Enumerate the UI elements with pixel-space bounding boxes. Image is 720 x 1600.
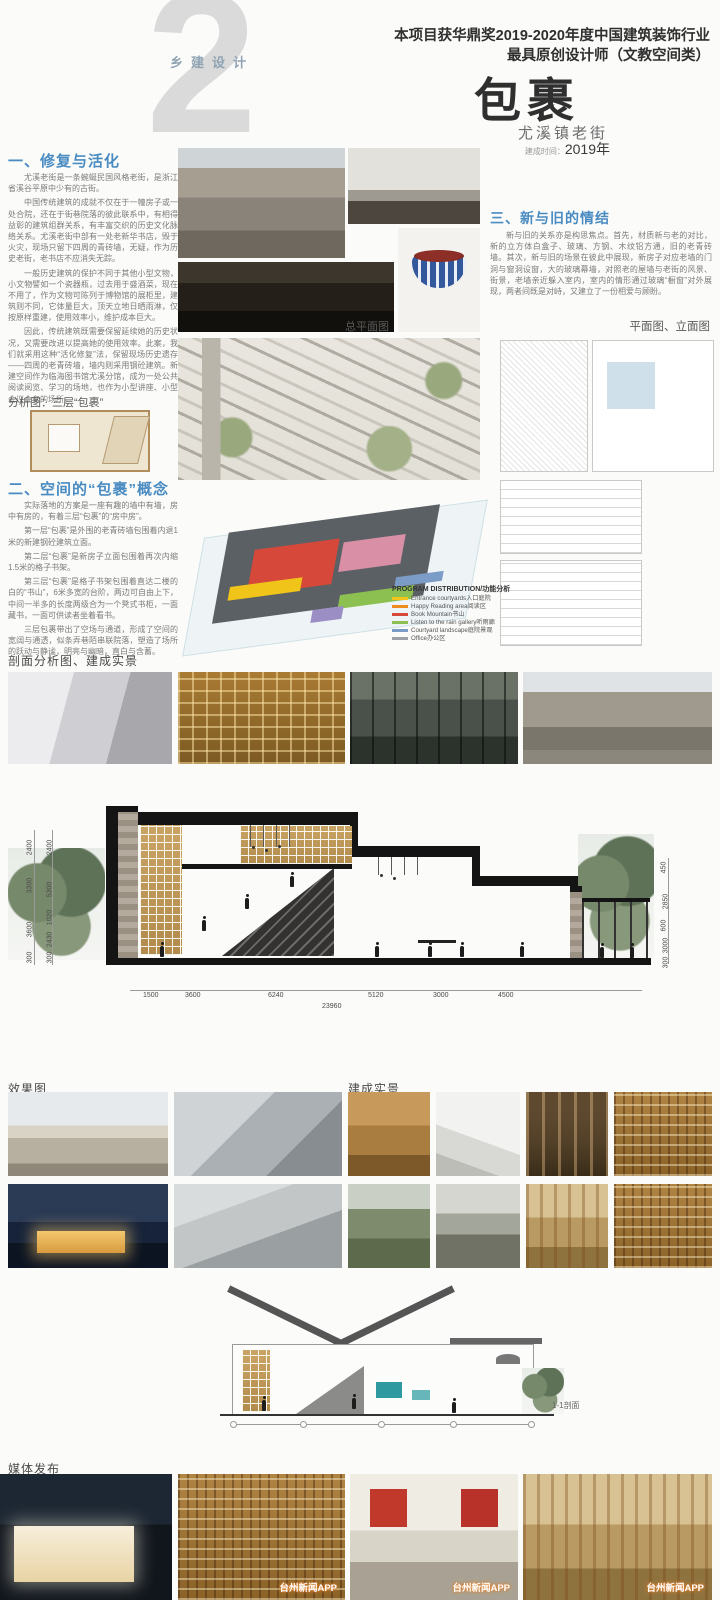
person-silhouette (630, 947, 634, 958)
photo-media-night-exterior: 台州新闻APP (0, 1474, 172, 1600)
photo-media-bookshelf: 台州新闻APP (178, 1474, 345, 1600)
dimension-label: 2850 (662, 894, 669, 910)
photo-white-corridor (8, 672, 172, 764)
diagram-courtyard (48, 424, 80, 452)
legend-label: Office办公区 (411, 634, 445, 643)
built-time-label: 建成时间： (525, 147, 565, 156)
legend-swatch (392, 629, 408, 632)
dimension-label: 300 (662, 957, 669, 969)
photo-built-courtyard (348, 1184, 430, 1268)
diagram-wedge (102, 416, 150, 464)
paragraph: 一般历史建筑的保护不同于其他小型文物，小文物譬如一个瓷器瓶，过去用于盛酒菜，现在… (8, 268, 178, 324)
porcelain-bowl (412, 254, 466, 288)
dimension-label: 2430 (46, 932, 53, 948)
section-roof-low (472, 876, 580, 886)
series-label: 乡建设计 (170, 52, 254, 71)
paragraph: 尤溪老街是一条蜿蜒民国风格老街，是浙江省溪谷平原中少有的古街。 (8, 172, 178, 194)
person-silhouette (428, 946, 432, 957)
dimension-label: 3600 (26, 922, 33, 938)
dimension-label: 300 (46, 952, 53, 964)
section-right-wall (570, 886, 582, 964)
photo-render-massing (174, 1092, 342, 1176)
photo-trees-left (8, 848, 105, 960)
photo-media-library: 台州新闻APP (523, 1474, 712, 1600)
teal-volume-1 (376, 1382, 402, 1398)
elevation-drawing-2 (500, 560, 642, 646)
section-mezzanine-slab (182, 864, 352, 869)
axis-bubble (450, 1421, 457, 1428)
paragraph: 因此，传统建筑既需要保留延续她的历史状况，又需要改进以提高她的使用效率。此案，我… (8, 326, 178, 404)
legend-swatch (392, 605, 408, 608)
heading-new-old: 三、新与旧的情结 (490, 208, 610, 228)
photo-built-bookwall (614, 1092, 712, 1176)
dimension-label: 2400 (46, 840, 53, 856)
axis-bubble (378, 1421, 385, 1428)
news-app-watermark: 台州新闻APP (452, 1580, 510, 1594)
site-plan-caption: 总平面图 (345, 318, 389, 334)
dimension-line (130, 990, 642, 991)
section-left-wall (106, 806, 118, 964)
dimension-line (34, 830, 35, 965)
dimension-label: 450 (660, 862, 667, 874)
person-silhouette (245, 898, 249, 909)
legend-title: PROGRAM DISTRIBUTION/功能分析 (392, 584, 512, 594)
photo-old-street (178, 148, 345, 258)
section-pergola-posts (582, 902, 650, 958)
light-bulb (393, 877, 396, 880)
photo-built-bookshelves (614, 1184, 712, 1268)
light-bulb (265, 849, 268, 852)
axis-bubble (230, 1421, 237, 1428)
program-legend: PROGRAM DISTRIBUTION/功能分析 Entrance court… (392, 584, 512, 642)
wrap-analysis-diagram (30, 410, 150, 472)
award-text: 本项目获华鼎奖2019-2020年度中国建筑装饰行业 最具原创设计师（文教空间类… (394, 26, 710, 67)
photo-built-wood-interior (348, 1092, 430, 1176)
section-photos-heading: 剖面分析图、建成实景 (8, 652, 138, 669)
photo-built-shelf-corridor (526, 1092, 608, 1176)
dimension-label: 5120 (368, 992, 384, 999)
light-bulb (278, 845, 281, 848)
dimension-label: 4500 (498, 992, 514, 999)
small-section-ground (220, 1414, 554, 1416)
dimension-label: 2400 (26, 840, 33, 856)
restoration-text: 尤溪老街是一条蜿蜒民国风格老街，是浙江省溪谷平原中少有的古街。 中国传统建筑的成… (8, 172, 178, 408)
section-book-mountain-stair (222, 868, 334, 956)
heading-restoration: 一、修复与活化 (8, 150, 120, 171)
person-silhouette (452, 1402, 456, 1413)
legend-swatch (392, 621, 408, 624)
photo-media-conference: 台州新闻APP (350, 1474, 518, 1600)
person-silhouette (520, 946, 524, 957)
light-bulb (380, 874, 383, 877)
paragraph: 新与旧的关系亦是构思焦点。首先，材质新与老的对比，新的立方体白盒子、玻璃、方钢、… (490, 230, 712, 297)
section-brick-pier (118, 806, 138, 964)
person-silhouette (352, 1398, 356, 1409)
wrap-concept-text: 实际落地的方案是一座有趣的墙中有墙，房中有房的，有着三层“包裹”的“房中房”。 … (8, 500, 178, 660)
person-silhouette (460, 946, 464, 957)
big-number-2: 2 (146, 0, 257, 164)
plans-caption: 平面图、立面图 (630, 318, 711, 334)
teal-volume-2 (412, 1390, 430, 1400)
person-silhouette (600, 947, 604, 958)
dimension-label: 5300 (46, 882, 53, 898)
axis-bubble (300, 1421, 307, 1428)
person-silhouette (262, 1400, 266, 1411)
dimension-label: 1020 (46, 910, 53, 926)
dimension-total: 23960 (322, 1003, 341, 1010)
news-app-watermark: 台州新闻APP (34, 1562, 92, 1576)
photo-porcelain-bowl (398, 228, 480, 332)
legend-item: Courtyard landscape庭院景观 (392, 626, 512, 634)
paragraph: 实际落地的方案是一座有趣的墙中有墙，房中有房的，有着三层“包裹”的“房中房”。 (8, 500, 178, 522)
photo-render-night (8, 1184, 168, 1268)
dimension-label: 300 (26, 952, 33, 964)
design-poster: 2 乡建设计 本项目获华鼎奖2019-2020年度中国建筑装饰行业 最具原创设计… (0, 0, 720, 1600)
site-plan-drawing (178, 338, 480, 480)
dimension-label: 600 (660, 920, 667, 932)
floor-plan-drawing-2 (592, 340, 714, 472)
built-time-value: 2019年 (565, 141, 610, 157)
dimension-label: 6240 (268, 992, 284, 999)
section-ground-slab (106, 958, 651, 965)
heading-wrap-concept: 二、空间的“包裹”概念 (8, 478, 169, 499)
pendant-lights-2 (378, 857, 418, 875)
paragraph: 中国传统建筑的成就不仅在于一幢房子或一处合院，还在于街巷院落的彼此联系中，有相得… (8, 197, 178, 264)
news-app-watermark: 台州新闻APP (646, 1580, 704, 1594)
photo-render-aerial (174, 1184, 342, 1268)
roof-slope-left (227, 1285, 349, 1349)
small-section-label: 1-1剖面 (552, 1400, 580, 1411)
section-pergola-beam (582, 898, 650, 902)
legend-swatch (392, 613, 408, 616)
paragraph: 第三层“包裹”是格子书架包围着直达二楼的白的“书山”，6米多宽的台阶，两边可自由… (8, 576, 178, 621)
paragraph: 第一层“包裹”是外围的老青砖墙包围着内退1米的新建钢砼建筑立面。 (8, 525, 178, 547)
photo-storefront (348, 148, 480, 224)
photo-gold-bookshelf (178, 672, 345, 764)
photo-render-day (8, 1092, 168, 1176)
new-old-text: 新与旧的关系亦是构思焦点。首先，材质新与老的对比，新的立方体白盒子、玻璃、方钢、… (490, 230, 712, 300)
award-line1: 本项目获华鼎奖2019-2020年度中国建筑装饰行业 (394, 26, 710, 46)
elevation-drawing-1 (500, 480, 642, 554)
light-bulb (252, 846, 255, 849)
dimension-label: 3000 (433, 992, 449, 999)
photo-stone-wall-street (523, 672, 712, 764)
roof-slope-right (333, 1285, 455, 1349)
photo-built-reading-steps (526, 1184, 608, 1268)
project-title: 包裹 (474, 62, 580, 131)
person-silhouette (290, 876, 294, 887)
reading-table (418, 940, 456, 943)
small-section-body (232, 1344, 534, 1416)
person-silhouette (375, 946, 379, 957)
small-section-drawing (200, 1280, 570, 1430)
dimension-label: 3300 (26, 878, 33, 894)
person-silhouette (160, 946, 164, 957)
news-app-watermark: 台州新闻APP (279, 1580, 337, 1594)
built-time: 建成时间：2019年 (525, 139, 610, 159)
section-bookshelf-left (140, 825, 182, 955)
legend-item: Office办公区 (392, 634, 512, 642)
analysis-caption: 分析图：三层“包裹” (8, 394, 103, 410)
photo-built-canopy (436, 1184, 520, 1268)
floor-plan-drawing-1 (500, 340, 588, 472)
umbrella-icon (496, 1354, 520, 1364)
legend-swatch (392, 637, 408, 640)
axis-bubble (528, 1421, 535, 1428)
section-roof-mid (350, 846, 480, 857)
paragraph: 第二层“包裹”是新房子立面包围着再次内缩1.5米的格子书架。 (8, 551, 178, 573)
section-roof-high (138, 812, 358, 825)
photo-built-white-room (436, 1092, 520, 1176)
person-silhouette (202, 920, 206, 931)
pendant-lights-1 (250, 825, 290, 847)
dimension-label: 3600 (185, 992, 201, 999)
dimension-label: 1500 (143, 992, 159, 999)
photo-glass-facade (350, 672, 518, 764)
main-section-drawing: 1500 3600 6240 5120 3000 4500 23960 2400… (0, 770, 720, 1015)
legend-swatch (392, 597, 408, 600)
dimension-label: 3000 (662, 938, 669, 954)
